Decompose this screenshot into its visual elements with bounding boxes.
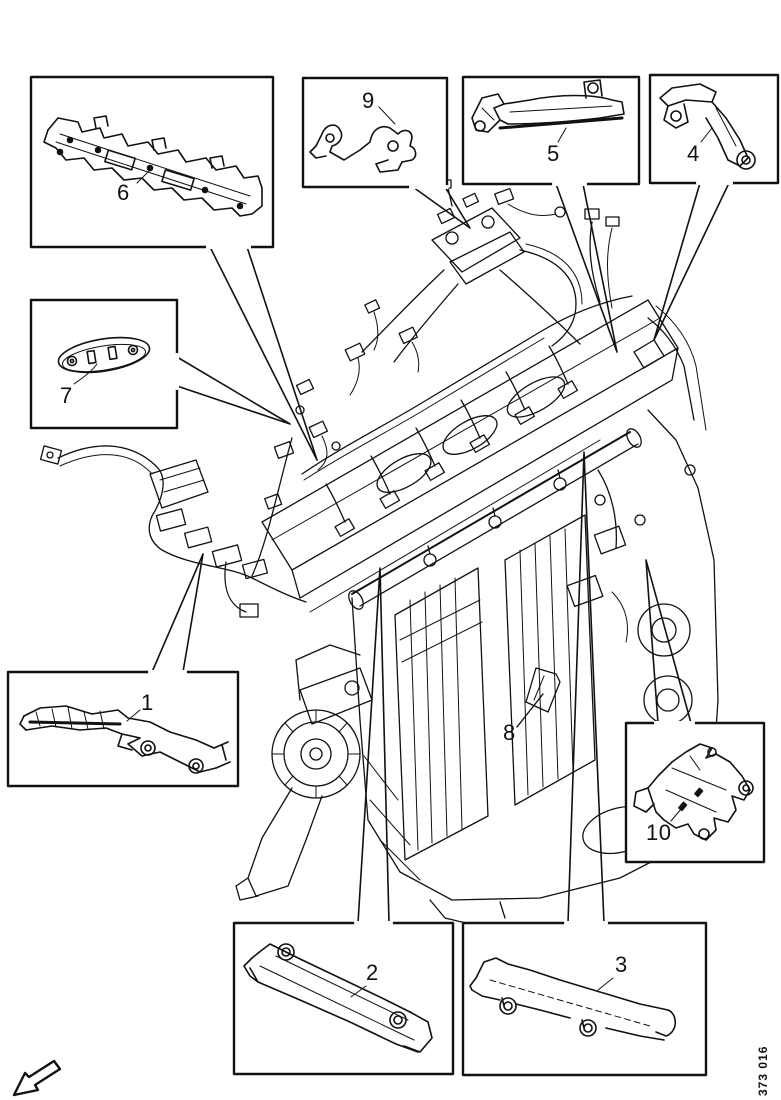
parts-diagram-canvas: 1 2 3 4 5 6 7 8 9 10 373 016	[0, 0, 781, 1100]
callout-label-4: 4	[687, 143, 700, 165]
callout-label-3: 3	[615, 954, 628, 976]
front-direction-arrow-icon	[14, 1061, 60, 1095]
leader-wedge-1	[152, 554, 203, 672]
callout-label-9: 9	[362, 90, 375, 112]
callout-label-2: 2	[366, 962, 379, 984]
coil-assembly	[362, 180, 619, 362]
callout-label-10: 10	[646, 822, 671, 844]
callout-box-7	[31, 300, 177, 428]
diagram-artwork	[0, 0, 781, 1100]
right-end-brackets	[634, 306, 706, 430]
fuel-rail	[346, 426, 644, 611]
leader-wedge-7	[177, 357, 290, 424]
leader-wedge-10	[646, 560, 691, 723]
callout-label-8: 8	[503, 722, 516, 744]
leader-wedge-6	[210, 247, 317, 460]
callout-label-1: 1	[141, 692, 154, 714]
engine-harness-illustration	[40, 180, 718, 924]
leader-wedge-4	[654, 183, 729, 340]
callout-box-9	[303, 78, 447, 187]
callout-label-5: 5	[547, 143, 560, 165]
callout-label-7: 7	[60, 385, 73, 407]
label-8-leader	[517, 694, 543, 727]
callout-box-3	[463, 923, 706, 1075]
callout-label-6: 6	[117, 182, 130, 204]
figure-number: 373 016	[756, 1036, 770, 1096]
crank-pulley	[236, 645, 372, 900]
callout-box-1	[8, 672, 238, 786]
callout-box-6	[31, 77, 273, 247]
